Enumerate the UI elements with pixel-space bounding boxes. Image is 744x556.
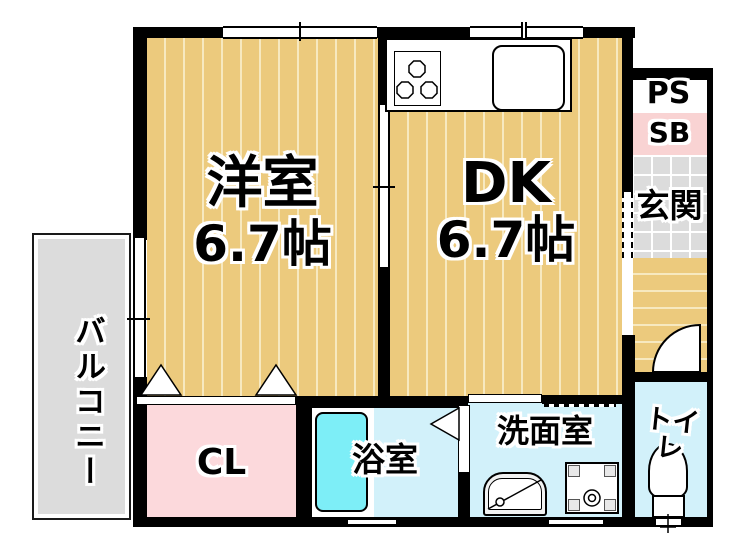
- bath-window: [347, 519, 397, 525]
- toilet-label: トイレ: [629, 404, 712, 466]
- washer-corner: [568, 499, 580, 511]
- wall-toilet-top: [635, 372, 707, 382]
- toilet-tank: [652, 495, 685, 518]
- wall-room-dk-lower: [378, 267, 390, 398]
- washroom-window: [548, 519, 604, 525]
- washroom-label: 洗面室: [468, 415, 622, 447]
- washer-corner: [604, 499, 616, 511]
- wall-bath-washroom: [458, 473, 470, 517]
- ps-label: PS: [630, 79, 707, 109]
- window-balcony: [133, 238, 146, 377]
- washroom-sliding-track: [544, 404, 616, 407]
- wall-left-upper: [133, 27, 147, 240]
- toilet-door-panel: [653, 364, 700, 373]
- western-room-label: 洋室: [147, 156, 378, 212]
- window-tick-left: [127, 318, 150, 320]
- window-tick-top: [299, 22, 301, 41]
- dk-size: 6.7帖: [390, 215, 622, 265]
- wall-washroom-top: [542, 395, 622, 404]
- wall-dk-right: [622, 38, 633, 192]
- western-room-size: 6.7帖: [147, 219, 378, 269]
- bath-label: 浴室: [312, 443, 458, 476]
- sb-label: SB: [632, 119, 707, 147]
- stove: [394, 51, 441, 106]
- entrance-label: 玄関: [630, 189, 709, 222]
- toilet-base: [655, 518, 682, 526]
- washer-corner: [604, 465, 616, 477]
- wall-right: [707, 68, 713, 527]
- dk-label: DK: [390, 156, 622, 212]
- wall-south-inner: [296, 396, 468, 408]
- wall-closet-bath: [296, 396, 312, 527]
- kitchen-sink: [492, 45, 565, 111]
- balcony-label: バルコニー: [62, 297, 102, 507]
- washbasin-bowl: [488, 478, 542, 510]
- washer-corner: [568, 465, 580, 477]
- washing-machine-pan: [565, 462, 619, 514]
- floor-plan: 洋室 6.7帖 DK 6.7帖 PS SB 玄関 バルコニー CL 浴室 洗面室…: [0, 0, 744, 556]
- washroom-door-panel: [468, 394, 542, 403]
- closet-folding-door: [136, 396, 296, 405]
- closet-label: CL: [147, 445, 296, 481]
